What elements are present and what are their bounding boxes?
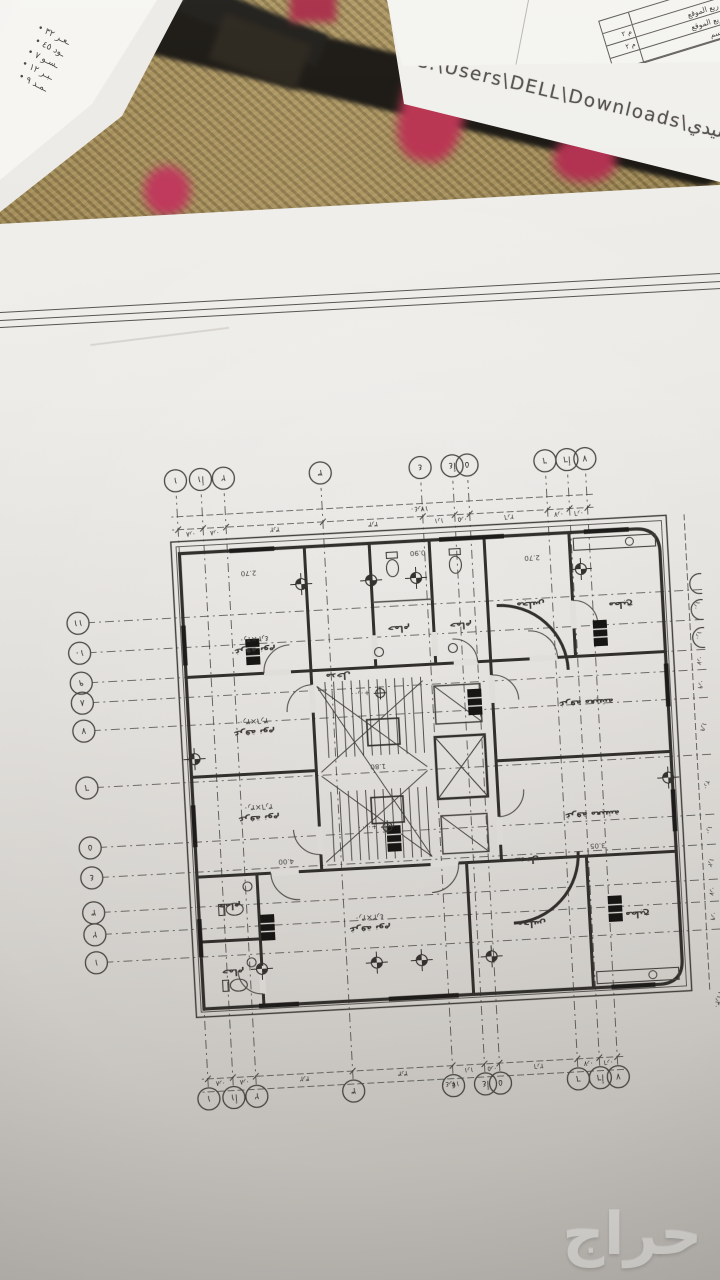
overall-dim: ٢١٫٣٠	[712, 990, 720, 1009]
grid-bubble-label: ١أ	[196, 473, 204, 485]
room-label: حمام	[218, 900, 241, 911]
paper-crease-line	[515, 0, 531, 69]
window	[439, 536, 504, 540]
dim-text: ٢٫٠	[701, 780, 711, 791]
room-label: غرفة معيشة	[558, 695, 614, 708]
room-label: مطبخ	[608, 598, 633, 609]
dim-text: ٢٫٦	[504, 513, 514, 522]
grid-bubble-label: ٧	[615, 1070, 621, 1080]
window	[673, 789, 675, 831]
grid-bubble-label: ٥	[87, 842, 93, 852]
dim-text: ٠٫٦	[573, 509, 583, 518]
room-label: مدخل	[514, 854, 540, 865]
grid-bubble-label: ٣	[351, 1085, 357, 1095]
dim-text: ١٫٩	[698, 721, 708, 733]
dim-text: ١٫١	[464, 1066, 474, 1075]
grid-bubble-label: ٦	[575, 1073, 581, 1083]
dim-text: ٠٫٩	[708, 910, 718, 922]
room-label: غرفة نوم	[234, 644, 276, 656]
grid-bubble-label: ٦	[84, 782, 90, 792]
sheet-border-line	[0, 280, 720, 324]
dim-text: ٠٫٨	[209, 528, 219, 537]
sink	[243, 882, 252, 891]
grid-bubble-label: ٧	[582, 452, 588, 462]
beam-mark	[260, 914, 275, 941]
title-block-table: بيانقيمة ربع الموقعم ٢قيمة ربع الموقعم ٢…	[598, 0, 720, 73]
grid-bubble-label: ١	[173, 474, 178, 484]
window	[193, 805, 195, 847]
dim-text: ١٫١	[434, 516, 444, 525]
pencil-smudge	[90, 327, 229, 346]
kitchen-counter	[573, 534, 656, 550]
level-text: +٠٫٠٠	[350, 689, 370, 698]
dim-text: ٠٫٦	[603, 1058, 613, 1067]
walls	[171, 515, 692, 1017]
kitchen-counter	[597, 967, 680, 983]
grid-bubble-label: ٤	[417, 461, 423, 471]
dim-text: ٠٫٨	[239, 1078, 249, 1087]
wc-fixture	[386, 559, 399, 577]
dim-text: ٠٫٧	[695, 655, 705, 667]
beam-mark	[608, 895, 623, 922]
wc-fixture	[230, 979, 248, 992]
dim-text: ٣٫٢	[299, 1074, 309, 1083]
window	[259, 1004, 299, 1006]
room-label: غرفة نوم	[233, 726, 275, 738]
wall-dim: 2.70	[241, 569, 257, 578]
grid-bubble-label: ٤	[89, 872, 95, 882]
beam-mark	[467, 689, 482, 716]
level-text: +٠٫٠٠	[358, 822, 378, 831]
wall-dim: 1.80	[370, 762, 386, 771]
dim-text: ٠٫٥	[487, 1064, 497, 1073]
dim-text: ٠٫٩	[696, 679, 706, 691]
window	[584, 529, 629, 531]
grid-bubble-label: ١٠	[74, 647, 84, 658]
grid-bubble-label: ٤أ	[481, 1078, 489, 1090]
door-arc	[528, 629, 557, 658]
grid-bubble-label: ٦	[542, 454, 548, 464]
dim-text: ٠٫٧	[583, 1059, 593, 1068]
room-label: مدخل	[325, 670, 351, 681]
beam-mark	[386, 825, 401, 852]
grid-bubble-label: ٥	[464, 459, 470, 469]
dim-text: ٣٫٣	[397, 1069, 407, 1078]
room-label: غرفة معيشة	[564, 807, 620, 820]
room-label: غرفة نوم	[349, 922, 391, 934]
grid-bubble-label: ٤	[451, 1079, 457, 1089]
grid-bubble-label: ٥	[498, 1077, 504, 1087]
dim-text: ٢٫٦	[533, 1062, 543, 1071]
grid-bubble-label: ٤أ	[448, 459, 456, 471]
grid-bubble-label: ٣	[91, 907, 97, 917]
wc-fixture	[449, 556, 462, 574]
dim-text: ٠٫٨	[215, 1079, 225, 1088]
window	[183, 626, 185, 666]
grid-bubble-label: ٣	[317, 467, 323, 477]
room-size: ٣٫٠×٤٫٢	[239, 634, 269, 645]
grid-bubble-label: ١	[94, 956, 99, 966]
door-arc	[271, 872, 300, 901]
sheet-border-line	[0, 287, 720, 331]
beam-mark	[593, 620, 608, 647]
sink	[247, 958, 256, 967]
dim-text: ٠٫٧	[707, 886, 717, 898]
floor-plan-svg: ٠٫٦٠٫٧٢٫٦٠٫٥١٫١٣٫٣٣٫٢٠٫٨٠٫٨١٧٫٤٠٠٫٦٠٫٧٢٫…	[50, 435, 720, 1124]
window	[611, 985, 655, 987]
wall-dim: 3.05	[590, 841, 606, 850]
room-size: ٣٫٠×٤٫٢	[355, 912, 385, 923]
grid-bubble-label: ٢	[220, 472, 226, 482]
window	[229, 549, 274, 551]
dim-text: ٠٫٧	[553, 510, 563, 519]
floor-plan-sheet: ٠٫٦٠٫٧٢٫٦٠٫٥١٫١٣٫٣٣٫٢٠٫٨٠٫٨١٧٫٤٠٠٫٦٠٫٧٢٫…	[0, 184, 720, 1280]
room-size: ٣٫٠×٣٫٦	[243, 802, 273, 813]
wall-dim: 4.00	[278, 857, 294, 866]
door-arc	[498, 789, 525, 816]
room-label: غرفة نوم	[238, 812, 280, 824]
dim-text: ١٫٢	[705, 857, 715, 869]
dim-text: ١٫٠	[704, 825, 714, 836]
dim-text: ٠٫٨	[186, 530, 196, 539]
floor-plan-drawing: ٠٫٦٠٫٧٢٫٦٠٫٥١٫١٣٫٣٣٫٢٠٫٨٠٫٨١٧٫٤٠٠٫٦٠٫٧٢٫…	[50, 435, 720, 1124]
wall-dim: 2.70	[524, 553, 540, 562]
room-label: حمام	[449, 619, 472, 630]
window	[199, 919, 201, 957]
grid-bubble-label: ٦أ	[563, 453, 571, 465]
room-label: حمام	[387, 622, 410, 633]
dim-text: ٣٫٢	[269, 525, 279, 534]
dim-text: ٠٫٥	[457, 515, 467, 524]
bullet-list: ـعـر ٣٢ •ـود ٤٥ •ـسـو ٧ •ـبـر ١٢ •ـمـد ٩…	[0, 0, 72, 96]
grid-bubble-label: ٧	[81, 725, 87, 735]
room-label: مجلس	[517, 917, 546, 929]
grid-bubble-label: ٩	[78, 677, 84, 687]
overall-dim: ١٧٫٤٠	[410, 504, 429, 514]
room-label: حمام	[222, 966, 245, 977]
grid-bubble-label: ١١	[73, 617, 83, 628]
room-label: مجلس	[516, 598, 545, 610]
grid-bubble-label: ٨	[79, 697, 85, 707]
haraj-watermark: حراج	[562, 1200, 702, 1268]
rotated-print-text-group: ـعـر ٣٢ •ـود ٤٥ •ـسـو ٧ •ـبـر ١٢ •ـمـد ٩…	[0, 0, 72, 125]
carpet-red-motif	[290, 0, 336, 22]
dim-text: ٣٫٣	[368, 520, 378, 529]
grid-bubble-label: ١	[206, 1093, 211, 1103]
window	[666, 664, 668, 707]
door-arc	[431, 863, 460, 892]
title-block-paper: بيانقيمة ربع الموقعم ٢قيمة ربع الموقعم ٢…	[372, 0, 720, 70]
dim-text: ١٫٠	[692, 600, 702, 611]
grid-bubble-label: ٢	[92, 928, 98, 938]
photo-of-floor-plan-papers: ٠٫٦٠٫٧٢٫٦٠٫٥١٫١٣٫٣٣٫٢٠٫٨٠٫٨١٧٫٤٠٠٫٦٠٫٧٢٫…	[0, 0, 720, 1280]
sink	[448, 643, 457, 652]
room-label: مطبخ	[625, 908, 650, 919]
carpet-red-motif	[144, 166, 190, 216]
grid-bubble-label: ٦أ	[596, 1071, 604, 1083]
dimension-strings: ٠٫٦٠٫٧٢٫٦٠٫٥١٫١٣٫٣٣٫٢٠٫٨٠٫٨١٧٫٤٠٠٫٦٠٫٧٢٫…	[171, 489, 720, 1103]
wall-dim: 0.90	[410, 548, 426, 557]
grid-bubble-label: ٢	[254, 1090, 260, 1100]
room-size: ٣٫٠×٣٫٦	[239, 716, 269, 727]
grid-bubble-label: ١أ	[230, 1091, 238, 1103]
